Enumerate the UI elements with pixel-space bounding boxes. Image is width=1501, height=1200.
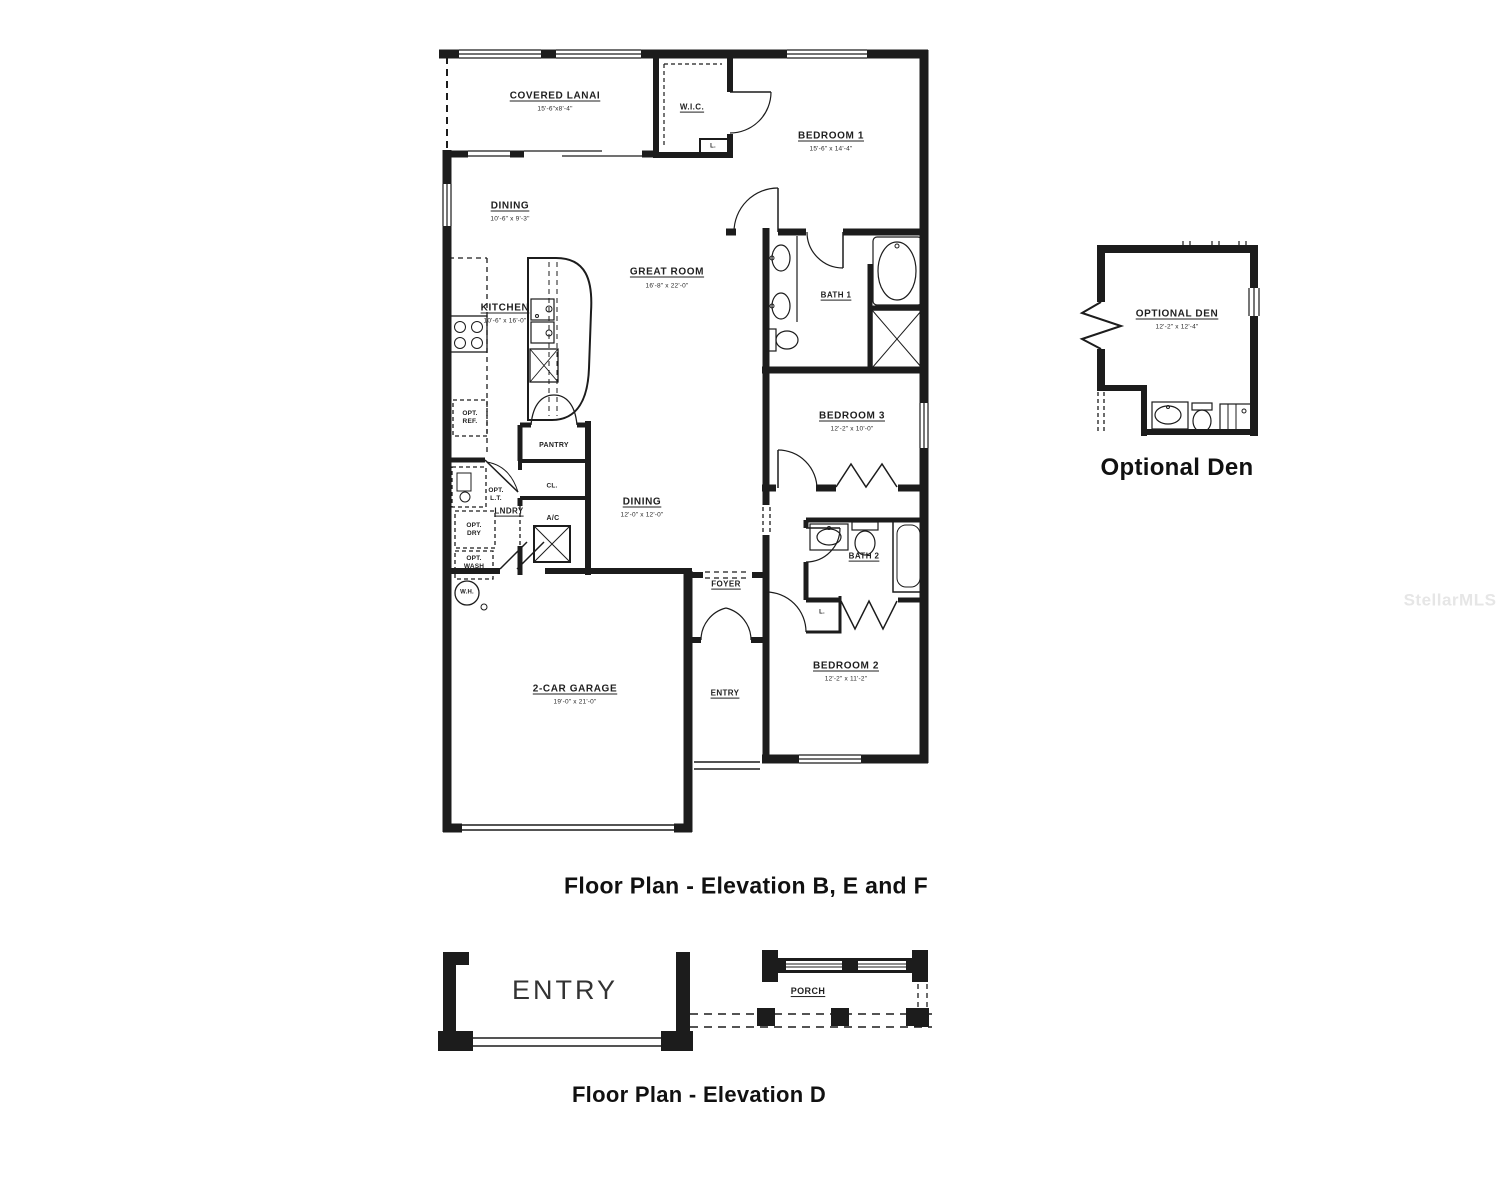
room-label-bedroom2: BEDROOM 2: [813, 661, 879, 672]
room-label-bedroom3: BEDROOM 3: [819, 411, 885, 422]
room-label-foyer: FOYER: [711, 581, 741, 590]
label-opt-wash: OPT. WASH: [461, 555, 487, 571]
room-label-dining-rear: DINING: [623, 497, 662, 508]
room-dims-bedroom2: 12'-2" x 11'-2": [825, 675, 868, 682]
stellar-mls-watermark: StellarMLS: [1404, 592, 1497, 611]
room-dims-covered-lanai: 15'-6"x8'-4": [537, 105, 572, 112]
room-label-pantry: PANTRY: [539, 442, 569, 450]
room-label-bedroom1: BEDROOM 1: [798, 131, 864, 142]
floorplan-drawing: [0, 0, 1501, 1200]
room-label-bath1: BATH 1: [821, 292, 852, 301]
room-label-bath2: BATH 2: [849, 553, 880, 562]
room-label-laundry: LNDRY: [494, 508, 523, 517]
label-opt-dry: OPT. DRY: [461, 522, 487, 538]
room-label-kitchen: KITCHEN: [481, 303, 530, 314]
room-dims-great-room: 16'-8" x 22'-0": [646, 282, 689, 289]
foyer-entry: [688, 572, 766, 769]
label-opt-ref: OPT. REF.: [457, 410, 483, 426]
optional-den-title: Optional Den: [1101, 455, 1254, 481]
bath2-bedroom2: [766, 520, 928, 632]
elevation-d-title: Floor Plan - Elevation D: [572, 1083, 826, 1107]
wic-bedroom1: [653, 54, 928, 268]
main-plan-walls: [439, 50, 928, 832]
room-dims-dining-front: 10'-6" x 9'-3": [490, 215, 529, 222]
room-label-wic: W.I.C.: [680, 104, 704, 113]
label-opt-lt: OPT. L.T.: [483, 487, 509, 503]
room-label-great-room: GREAT ROOM: [630, 267, 704, 278]
room-dims-dining-rear: 12'-0" x 12'-0": [621, 511, 664, 518]
floorplan-page: COVERED LANAI 15'-6"x8'-4" W.I.C. L. BED…: [0, 0, 1501, 1200]
label-ac: A/C: [547, 515, 560, 523]
room-dims-optional-den: 12'-2" x 12'-4": [1156, 323, 1199, 330]
room-dims-garage: 19'-0" x 21'-0": [554, 698, 597, 705]
room-label-optional-den: OPTIONAL DEN: [1136, 309, 1219, 320]
room-dims-bedroom3: 12'-2" x 10'-0": [831, 425, 874, 432]
elevation-d-porch-label: PORCH: [791, 987, 826, 997]
main-plan-title: Floor Plan - Elevation B, E and F: [564, 873, 928, 898]
room-label-closet: CL.: [546, 482, 557, 489]
room-dims-kitchen: 10'-6" x 16'-0": [484, 317, 527, 324]
bath1: [762, 228, 928, 374]
room-label-wic-linen: L.: [710, 144, 716, 151]
room-dims-bedroom1: 15'-6" x 14'-4": [810, 145, 853, 152]
label-linen: L.: [819, 610, 825, 617]
optional-den-plan: [1082, 241, 1260, 436]
label-water-heater: W.H.: [460, 590, 474, 597]
room-label-covered-lanai: COVERED LANAI: [510, 91, 601, 102]
room-label-entry: ENTRY: [711, 690, 740, 699]
room-label-dining-front: DINING: [491, 201, 530, 212]
room-label-garage: 2-CAR GARAGE: [533, 684, 617, 695]
elevation-d-entry-label: ENTRY: [512, 976, 618, 1006]
